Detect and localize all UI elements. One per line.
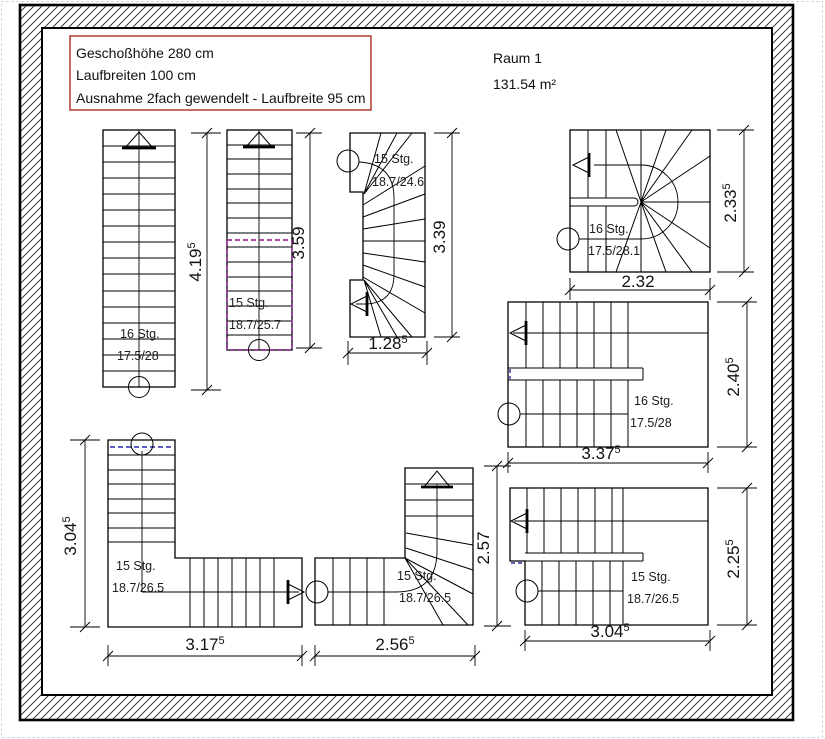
info-line-2: Laufbreiten 100 cm	[76, 67, 196, 83]
stair-ratio-label: 18.7/25.7	[229, 318, 281, 332]
stair-ratio-label: 18.7/24.6	[372, 175, 424, 189]
stair-steps-label: 15 Stg.	[631, 570, 671, 584]
floorplan-canvas: Geschoßhöhe 280 cm Laufbreiten 100 cm Au…	[0, 0, 825, 739]
info-box: Geschoßhöhe 280 cm Laufbreiten 100 cm Au…	[70, 36, 371, 110]
stair-ratio-label: 18.7/26.5	[112, 581, 164, 595]
info-line-1: Geschoßhöhe 280 cm	[76, 45, 214, 61]
stair-steps-label: 15 Stg.	[116, 559, 156, 573]
stair-steps-label: 16 Stg.	[634, 394, 674, 408]
stair-ratio-label: 17.5/28.1	[588, 244, 640, 258]
svg-text:2.32: 2.32	[621, 272, 654, 291]
room-area: 131.54 m²	[493, 76, 556, 92]
room-name: Raum 1	[493, 50, 542, 66]
svg-text:3.39: 3.39	[430, 220, 449, 253]
stair-ratio-label: 18.7/26.5	[627, 592, 679, 606]
floorplan-page: Geschoßhöhe 280 cm Laufbreiten 100 cm Au…	[0, 0, 825, 739]
svg-text:3.59: 3.59	[289, 226, 308, 259]
stair-steps-label: 15 Stg.	[374, 152, 414, 166]
stair-ratio-label: 17.5/28	[117, 349, 159, 363]
stair-steps-label: 16 Stg.	[589, 222, 629, 236]
stair-steps-label: 15 Stg.	[229, 296, 269, 310]
svg-text:2.57: 2.57	[474, 531, 493, 564]
info-line-3: Ausnahme 2fach gewendelt - Laufbreite 95…	[76, 90, 366, 106]
stair-ratio-label: 17.5/28	[630, 416, 672, 430]
stair-steps-label: 15 Stg.	[397, 569, 437, 583]
stair-ratio-label: 18.7/26.5	[399, 591, 451, 605]
stair-steps-label: 16 Stg.	[120, 327, 160, 341]
